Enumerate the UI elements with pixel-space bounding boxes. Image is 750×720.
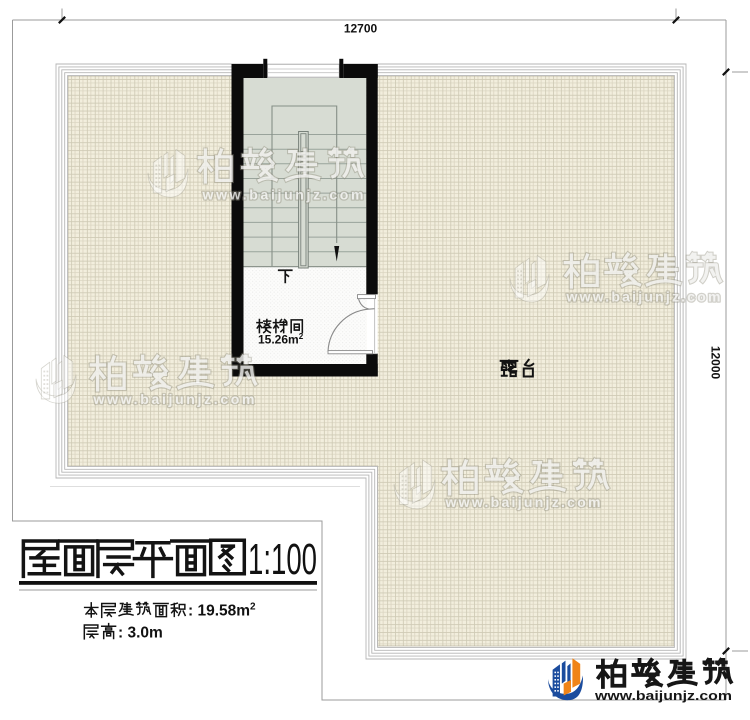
svg-text:: 3.0m: : 3.0m xyxy=(118,625,163,642)
svg-text:15.26m2: 15.26m2 xyxy=(258,332,304,347)
svg-text:1:100: 1:100 xyxy=(248,535,317,584)
svg-text:: 19.58m2: : 19.58m2 xyxy=(188,602,256,620)
svg-text:12700: 12700 xyxy=(344,22,378,36)
svg-text:12000: 12000 xyxy=(709,346,723,380)
svg-text:www.baijunjz.com: www.baijunjz.com xyxy=(594,688,732,703)
